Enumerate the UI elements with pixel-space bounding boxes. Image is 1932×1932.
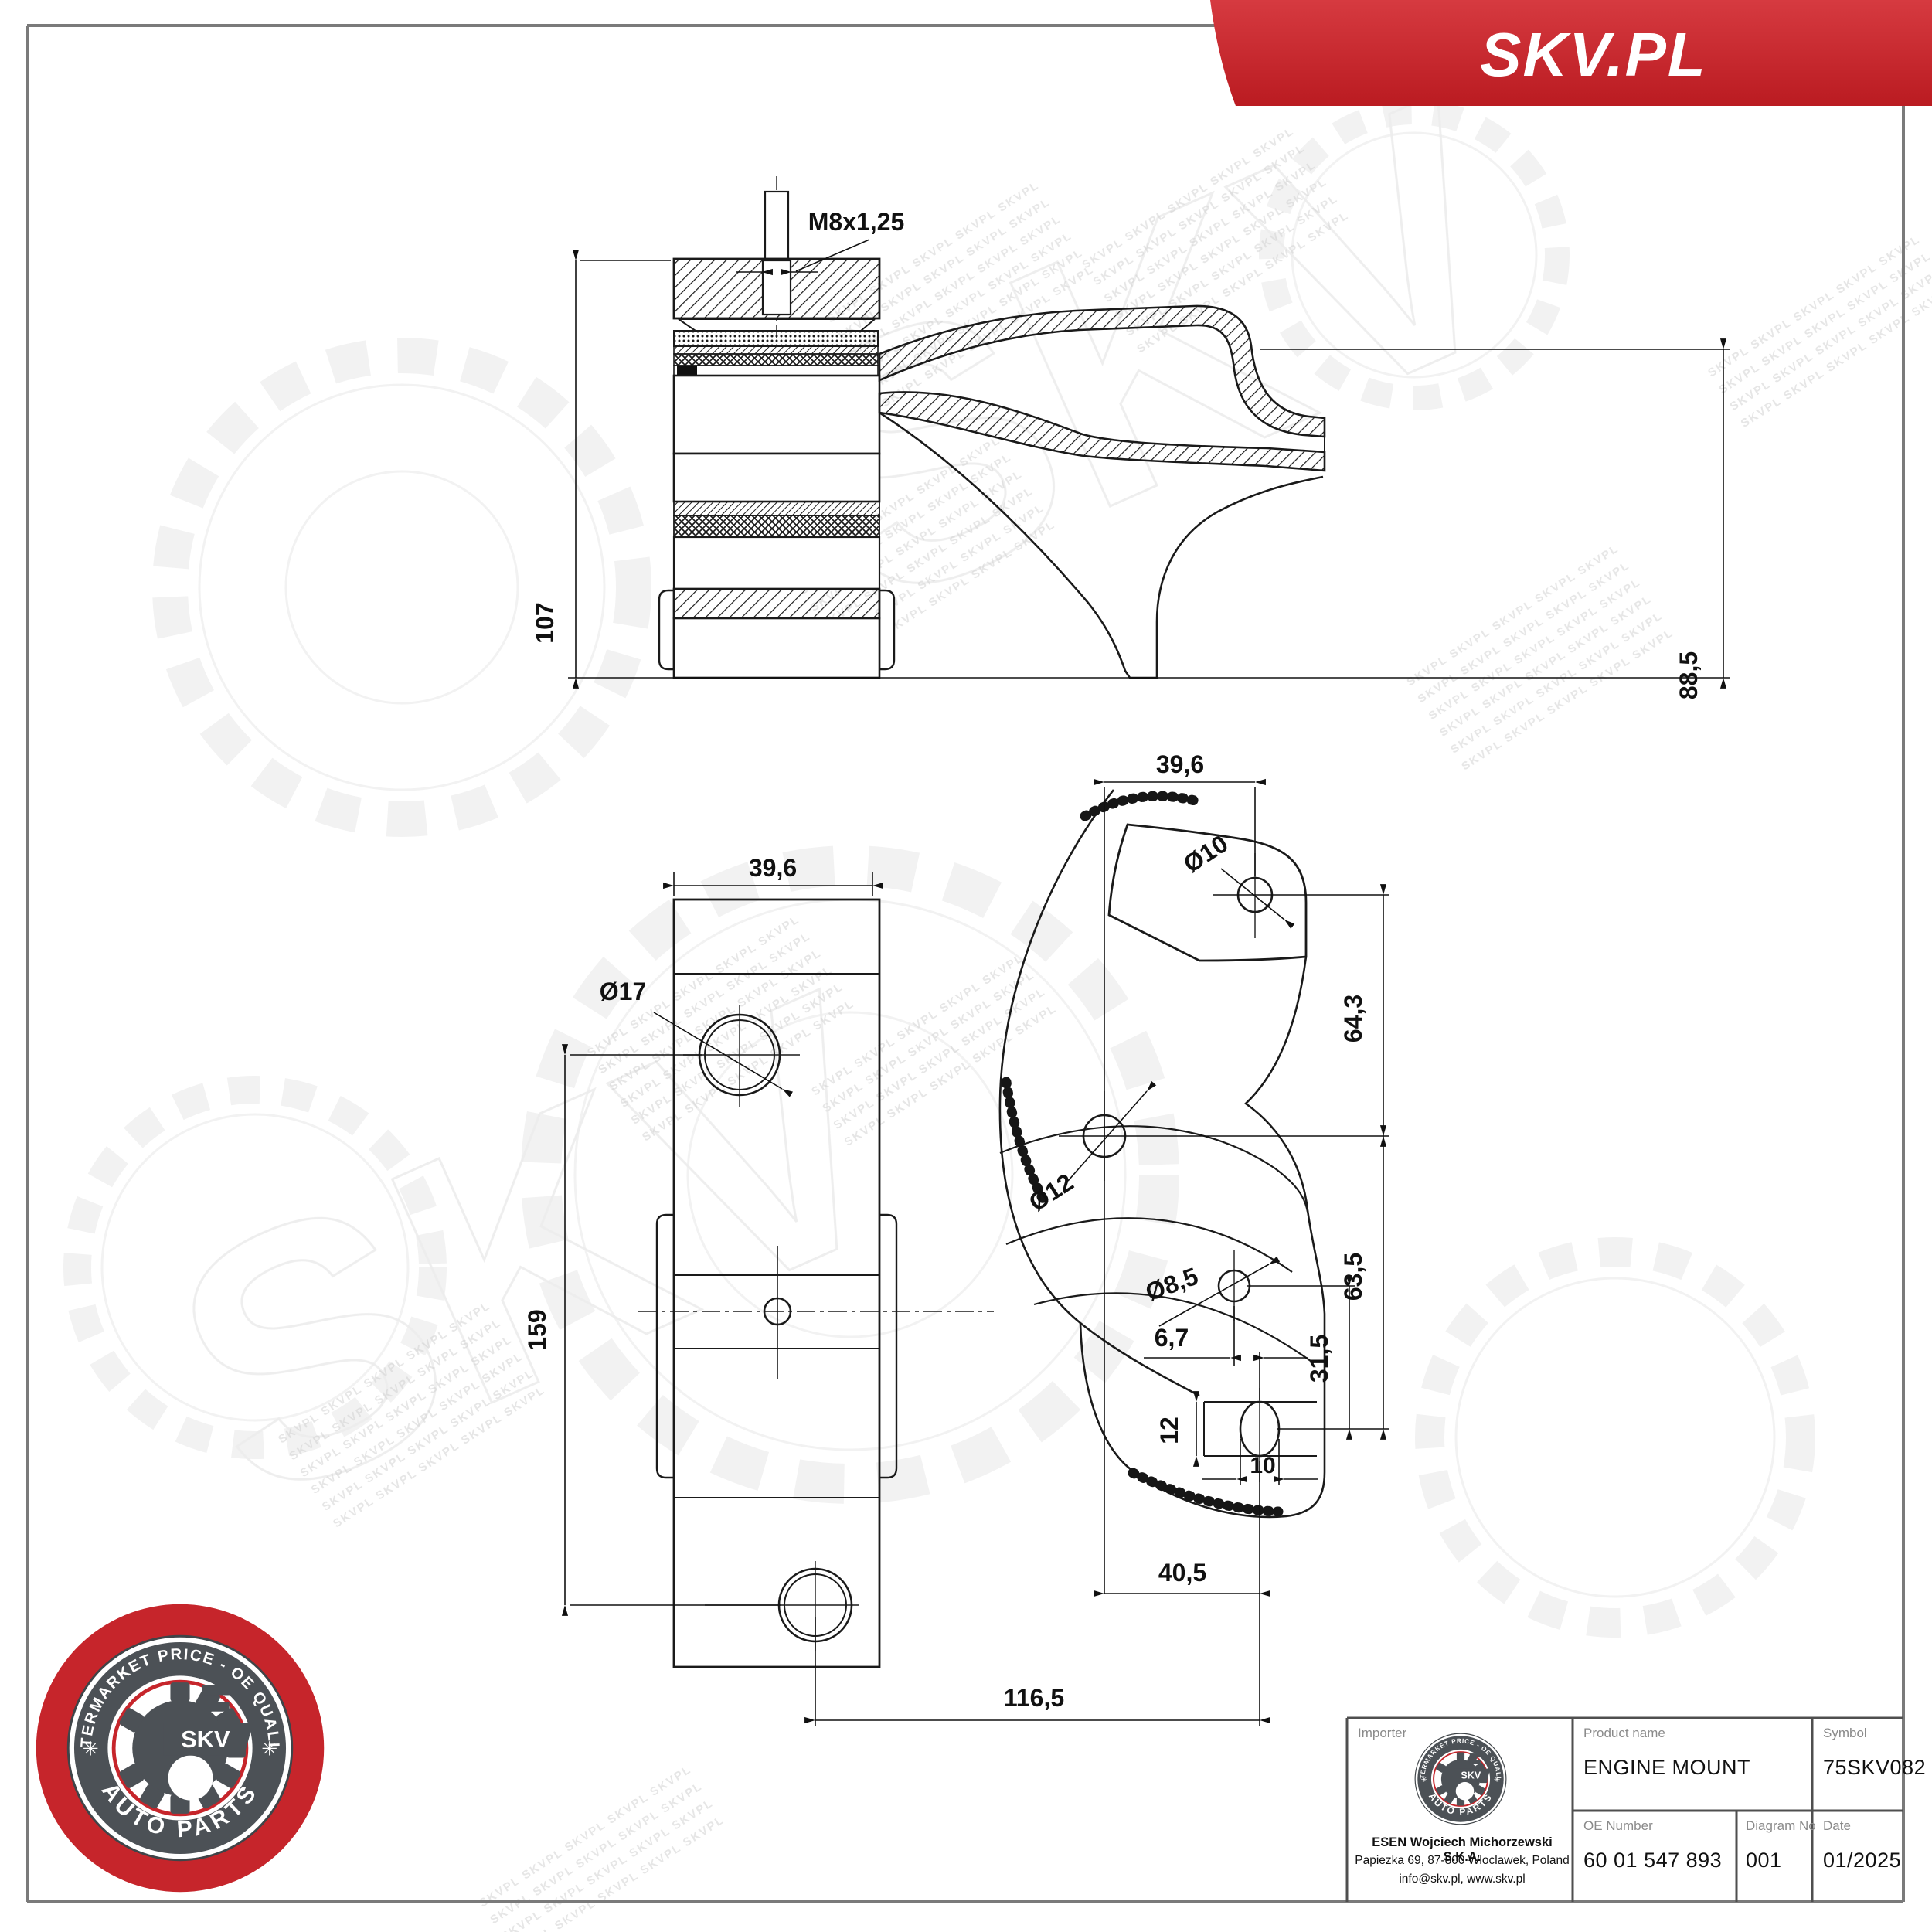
date-value: 01/2025	[1823, 1849, 1901, 1872]
diagram-no-label: Diagram No	[1746, 1818, 1816, 1834]
view-bottom	[638, 790, 1325, 1667]
dim-396-right-label: 39,6	[1156, 750, 1204, 778]
brand-banner: SKV.PL	[1210, 0, 1932, 106]
importer-contact: info@skv.pl, www.skv.pl	[1352, 1872, 1572, 1886]
dim-405-label: 40,5	[1158, 1559, 1206, 1587]
watermark-cluster: SKVPL SKVPL SKVPL SKVPL SKVPLSKVPL SKVPL…	[1706, 233, 1932, 430]
drawing-page: AFTERMARKET PRICE - OE QUALITY AUTO PART…	[0, 0, 1932, 1932]
date-label: Date	[1823, 1818, 1851, 1834]
dim-635-label: 63,5	[1339, 1253, 1367, 1301]
dim-m8-label: M8x1,25	[808, 208, 905, 236]
dim-10-label: 10	[1250, 1453, 1275, 1478]
importer-address: Papiezka 69, 87-800 Wloclawek, Poland	[1352, 1854, 1572, 1868]
brand-banner-text: SKV.PL	[1480, 20, 1707, 89]
dim-12-label: 12	[1155, 1417, 1183, 1444]
symbol-label: Symbol	[1823, 1726, 1867, 1741]
importer-label: Importer	[1358, 1726, 1406, 1741]
dim-643-label: 64,3	[1339, 995, 1367, 1043]
dim-1165-label: 116,5	[1004, 1684, 1064, 1712]
oe-number-label: OE Number	[1583, 1818, 1653, 1834]
dim-885-label: 88,5	[1675, 651, 1702, 699]
oe-number-value: 60 01 547 893	[1583, 1849, 1722, 1872]
diagram-no-value: 001	[1746, 1849, 1782, 1872]
product-name-label: Product name	[1583, 1726, 1665, 1741]
dim-315-label: 31,5	[1305, 1335, 1333, 1383]
dim-d17-label: Ø17	[600, 978, 646, 1005]
dim-107-label: 107	[531, 602, 559, 643]
dim-159-label: 159	[523, 1309, 551, 1350]
skv-titleblock-logo	[1413, 1731, 1509, 1827]
skv-corner-logo	[31, 1599, 329, 1897]
product-name-value: ENGINE MOUNT	[1583, 1756, 1750, 1780]
dim-396-left-label: 39,6	[749, 854, 797, 882]
watermark-cluster: SKVPL SKVPL SKVPL SKVPL SKVPLSKVPL SKVPL…	[1404, 542, 1675, 774]
dim-67-label: 6,7	[1155, 1324, 1189, 1352]
watermark-cluster: SKVPL SKVPL SKVPL SKVPL SKVPLSKVPL SKVPL…	[477, 1763, 726, 1932]
symbol-value: 75SKV082	[1823, 1756, 1926, 1780]
